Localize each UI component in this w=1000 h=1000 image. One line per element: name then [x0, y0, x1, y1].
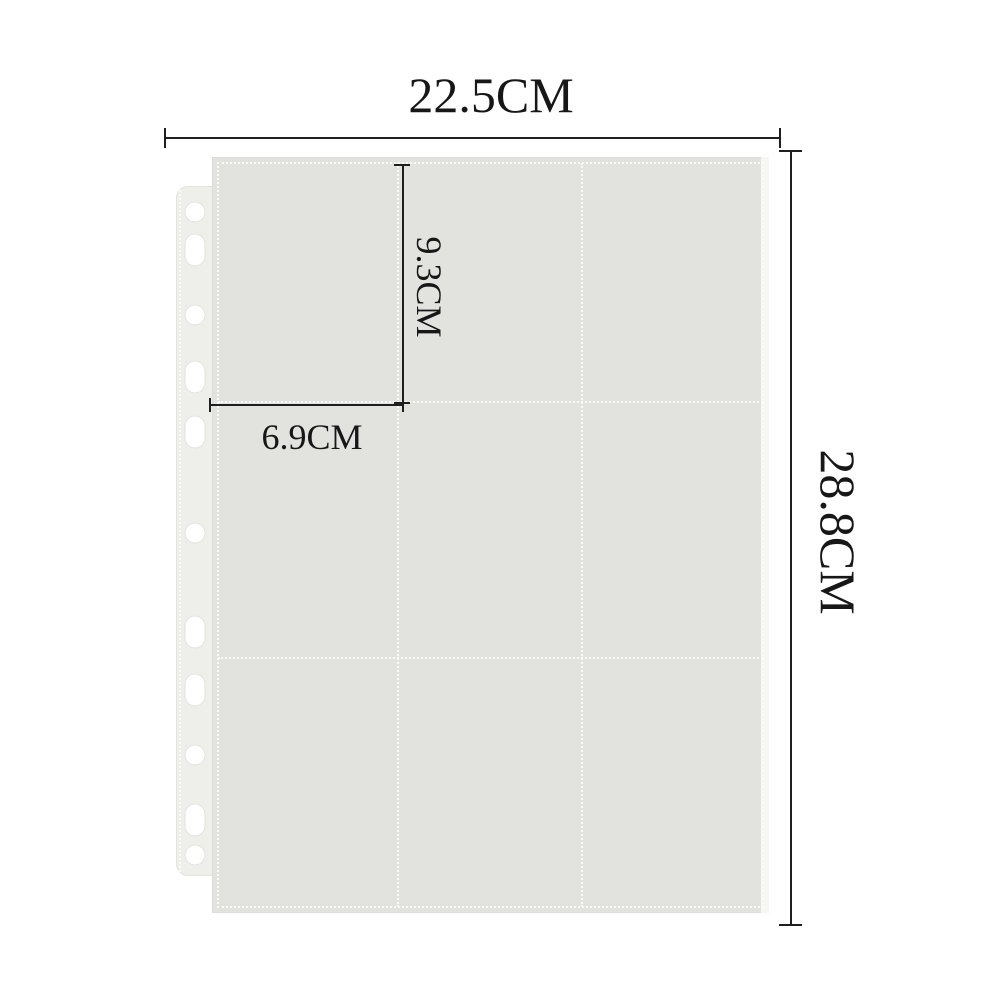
pocket-width-dimension-line	[210, 404, 404, 406]
sheet-edge-stitching	[217, 162, 764, 908]
pocket-seam-vertical-2	[581, 163, 583, 907]
page-width-dimension-tick-right	[779, 128, 781, 148]
pocket-height-dimension-line	[402, 165, 404, 404]
oblong-punch-hole	[185, 804, 206, 837]
oblong-punch-hole	[185, 616, 206, 649]
pocket-page-sheet	[212, 157, 769, 913]
oblong-punch-hole	[185, 416, 206, 449]
round-punch-hole	[185, 202, 206, 223]
page-height-dimension-tick-top	[779, 150, 802, 152]
round-punch-hole	[185, 845, 206, 866]
page-width-dimension-label: 22.5CM	[341, 70, 641, 120]
pocket-height-dimension-label: 9.3CM	[411, 187, 447, 387]
pocket-seam-horizontal-1	[218, 401, 763, 403]
page-height-dimension-label: 28.8CM	[813, 382, 863, 682]
round-punch-hole	[185, 745, 206, 766]
pocket-width-dimension-label: 6.9CM	[212, 419, 412, 455]
page-height-dimension-tick-bottom	[779, 924, 802, 926]
page-width-dimension-tick-left	[164, 128, 166, 148]
page-height-dimension-line	[790, 151, 792, 926]
round-punch-hole	[185, 305, 206, 326]
binder-strip	[176, 186, 214, 876]
product-dimension-diagram: 22.5CM 28.8CM 9.3CM 6.9CM	[0, 0, 1000, 1000]
oblong-punch-hole	[185, 361, 206, 394]
pocket-seam-horizontal-2	[218, 657, 763, 659]
pocket-height-dimension-tick-top	[394, 164, 410, 166]
oblong-punch-hole	[185, 674, 206, 707]
pocket-width-dimension-tick-left	[209, 398, 211, 412]
round-punch-hole	[185, 523, 206, 544]
sheet-right-edge-highlight	[761, 157, 769, 913]
oblong-punch-hole	[185, 234, 206, 267]
page-width-dimension-line	[165, 137, 781, 139]
pocket-seam-vertical-1	[397, 163, 399, 907]
pocket-width-dimension-tick-right	[402, 394, 404, 412]
